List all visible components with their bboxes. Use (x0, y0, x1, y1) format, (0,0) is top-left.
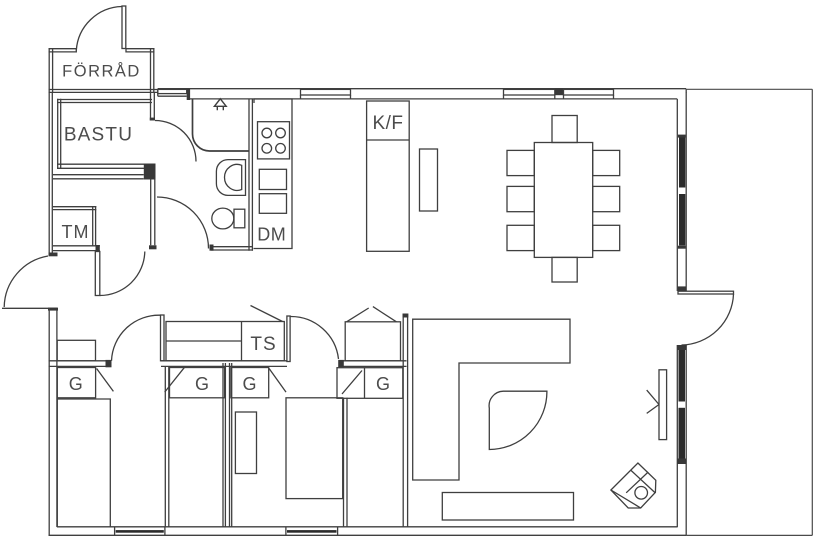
svg-text:G: G (69, 374, 83, 394)
svg-text:FÖRRÅD: FÖRRÅD (62, 61, 141, 80)
svg-text:G: G (376, 374, 390, 394)
svg-text:K/F: K/F (372, 113, 403, 134)
svg-text:G: G (195, 374, 209, 394)
svg-text:BASTU: BASTU (64, 125, 133, 146)
svg-text:G: G (242, 374, 256, 394)
svg-text:TS: TS (250, 334, 276, 355)
svg-text:TM: TM (62, 222, 90, 242)
svg-text:DM: DM (257, 224, 286, 244)
